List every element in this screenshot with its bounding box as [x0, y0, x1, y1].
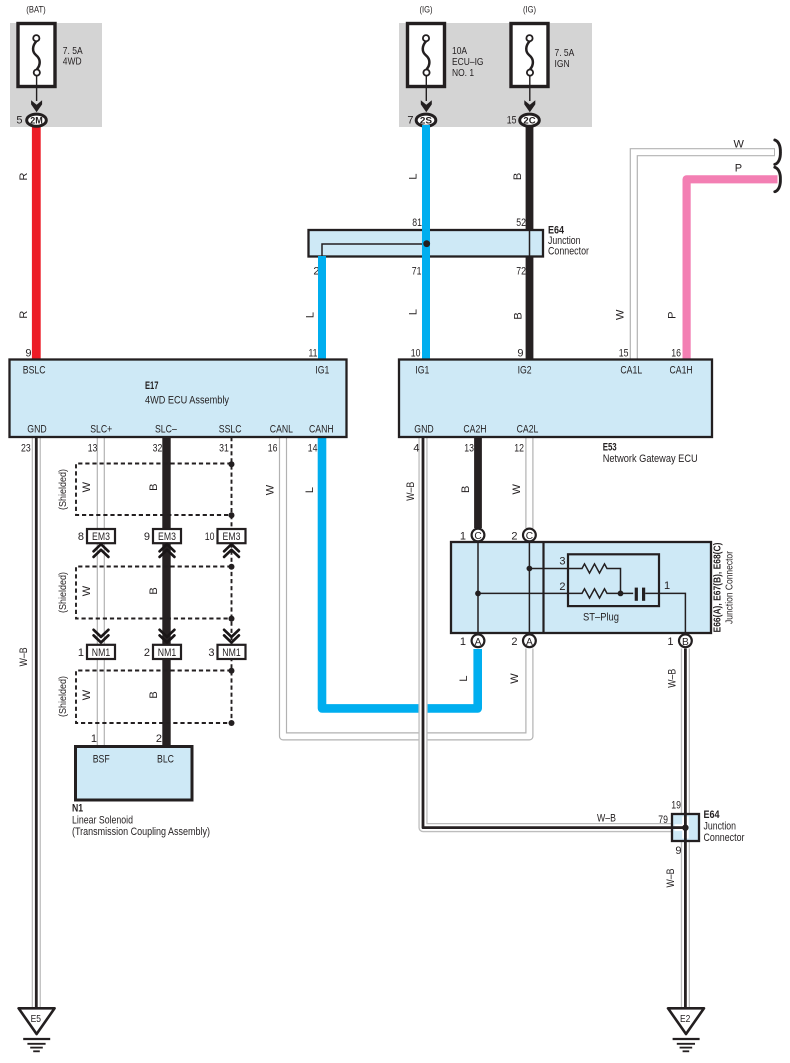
svg-text:W: W	[81, 481, 93, 492]
svg-text:1: 1	[78, 647, 84, 659]
svg-text:(Transmission Coupling Assembl: (Transmission Coupling Assembly)	[72, 826, 210, 838]
svg-text:Connector: Connector	[704, 832, 745, 844]
svg-text:EM3: EM3	[158, 531, 176, 543]
svg-text:E64: E64	[704, 809, 721, 821]
svg-text:3: 3	[208, 647, 214, 659]
svg-text:C: C	[526, 531, 533, 542]
svg-text:13: 13	[88, 443, 98, 455]
svg-text:W: W	[81, 585, 93, 596]
svg-text:CA2L: CA2L	[517, 423, 539, 435]
svg-text:11: 11	[309, 347, 318, 359]
svg-text:71: 71	[412, 266, 422, 278]
svg-text:23: 23	[21, 443, 31, 455]
svg-text:Linear Solenoid: Linear Solenoid	[72, 815, 133, 827]
svg-text:16: 16	[268, 443, 278, 455]
svg-text:Connector: Connector	[548, 245, 589, 257]
svg-text:R: R	[18, 311, 30, 319]
svg-text:2: 2	[511, 636, 517, 648]
svg-text:1: 1	[460, 636, 466, 648]
svg-text:W–B: W–B	[665, 869, 677, 888]
svg-text:31: 31	[219, 443, 229, 455]
svg-text:CA1H: CA1H	[670, 365, 693, 377]
svg-text:B: B	[682, 637, 689, 648]
svg-text:1: 1	[460, 530, 466, 542]
svg-text:E53: E53	[603, 441, 617, 453]
svg-text:W–B: W–B	[18, 647, 30, 666]
svg-text:(Shielded): (Shielded)	[58, 572, 69, 613]
svg-text:W: W	[509, 673, 521, 684]
svg-text:B: B	[148, 587, 160, 594]
svg-text:IG1: IG1	[415, 365, 429, 377]
svg-text:A: A	[475, 637, 482, 648]
svg-text:15: 15	[619, 347, 629, 359]
svg-text:1: 1	[667, 636, 673, 648]
svg-text:IG1: IG1	[315, 365, 329, 377]
svg-text:N1: N1	[72, 803, 83, 815]
svg-text:CA2H: CA2H	[463, 423, 486, 435]
svg-text:W: W	[264, 484, 276, 495]
svg-text:9: 9	[144, 531, 150, 543]
svg-text:2S: 2S	[420, 116, 432, 127]
svg-text:W–B: W–B	[666, 669, 678, 688]
svg-text:32: 32	[153, 443, 163, 455]
svg-text:Junction: Junction	[704, 821, 737, 833]
svg-text:E5: E5	[31, 1014, 42, 1025]
svg-text:(IG): (IG)	[523, 4, 536, 14]
svg-text:7: 7	[407, 115, 413, 127]
svg-text:SLC+: SLC+	[90, 423, 112, 435]
svg-text:9: 9	[25, 347, 31, 359]
svg-text:W–B: W–B	[597, 812, 616, 824]
svg-text:10: 10	[205, 531, 215, 543]
svg-text:B: B	[460, 486, 472, 493]
svg-text:E66(A), E67(B), E68(C): E66(A), E67(B), E68(C)	[713, 543, 724, 633]
svg-text:C: C	[474, 531, 481, 542]
svg-text:B: B	[148, 691, 160, 698]
svg-text:16: 16	[671, 347, 681, 359]
svg-text:12: 12	[514, 443, 524, 455]
svg-text:W: W	[615, 309, 627, 320]
svg-text:R: R	[18, 172, 30, 180]
svg-text:CANH: CANH	[309, 423, 334, 435]
svg-text:W: W	[511, 483, 523, 494]
svg-text:1: 1	[664, 580, 670, 592]
svg-text:3: 3	[559, 556, 565, 568]
svg-text:P: P	[735, 162, 742, 174]
svg-text:A: A	[526, 637, 533, 648]
svg-text:Junction Connector: Junction Connector	[725, 551, 736, 624]
svg-text:B: B	[148, 484, 160, 491]
svg-text:81: 81	[412, 217, 422, 229]
svg-text:L: L	[304, 312, 316, 318]
svg-text:W: W	[81, 689, 93, 700]
svg-text:GND: GND	[27, 423, 46, 435]
svg-text:BSF: BSF	[93, 754, 110, 766]
svg-text:CANL: CANL	[270, 423, 293, 435]
svg-text:(Shielded): (Shielded)	[58, 676, 69, 717]
svg-text:L: L	[408, 309, 420, 315]
svg-text:9: 9	[675, 845, 681, 857]
svg-text:19: 19	[671, 800, 681, 812]
svg-text:4: 4	[413, 443, 419, 455]
svg-text:15: 15	[507, 115, 517, 127]
svg-text:2M: 2M	[30, 116, 43, 127]
svg-text:14: 14	[308, 443, 318, 455]
svg-text:SSLC: SSLC	[219, 423, 242, 435]
svg-text:2: 2	[511, 530, 517, 542]
svg-text:W–B: W–B	[405, 482, 417, 501]
svg-text:9: 9	[517, 347, 523, 359]
svg-text:ST–Plug: ST–Plug	[583, 611, 619, 623]
svg-text:BLC: BLC	[157, 754, 174, 766]
svg-text:GND: GND	[414, 423, 433, 435]
svg-text:EM3: EM3	[92, 531, 110, 543]
svg-text:(IG): (IG)	[419, 4, 432, 14]
svg-text:EM3: EM3	[223, 531, 241, 543]
svg-text:IG2: IG2	[518, 365, 532, 377]
svg-text:2C: 2C	[523, 116, 535, 127]
svg-text:(BAT): (BAT)	[26, 4, 45, 14]
svg-text:10A: 10A	[452, 46, 467, 57]
svg-text:Network Gateway ECU: Network Gateway ECU	[603, 453, 698, 465]
svg-text:13: 13	[464, 443, 474, 455]
svg-text:2: 2	[144, 647, 150, 659]
svg-text:52: 52	[516, 217, 526, 229]
svg-text:BSLC: BSLC	[23, 365, 46, 377]
svg-text:(Shielded): (Shielded)	[58, 469, 69, 510]
svg-text:79: 79	[658, 814, 668, 826]
svg-text:NO. 1: NO. 1	[452, 68, 474, 79]
svg-text:4WD: 4WD	[63, 56, 82, 67]
svg-text:B: B	[512, 312, 524, 319]
svg-text:8: 8	[78, 531, 84, 543]
svg-text:CA1L: CA1L	[620, 365, 642, 377]
svg-text:1: 1	[91, 733, 97, 745]
svg-text:W: W	[734, 138, 745, 150]
svg-text:P: P	[667, 312, 679, 319]
svg-text:E2: E2	[680, 1014, 691, 1025]
svg-text:ECU–IG: ECU–IG	[452, 57, 484, 68]
svg-text:7. 5A: 7. 5A	[555, 48, 575, 59]
svg-text:IGN: IGN	[555, 59, 570, 70]
svg-text:4WD ECU Assembly: 4WD ECU Assembly	[145, 394, 229, 406]
svg-text:SLC–: SLC–	[155, 423, 177, 435]
svg-text:5: 5	[16, 115, 22, 127]
svg-text:72: 72	[516, 266, 526, 278]
svg-text:L: L	[408, 173, 420, 179]
svg-text:NM1: NM1	[92, 647, 110, 659]
svg-text:B: B	[512, 173, 524, 180]
svg-text:2: 2	[559, 581, 565, 593]
svg-text:NM1: NM1	[222, 647, 240, 659]
svg-text:NM1: NM1	[158, 647, 176, 659]
svg-text:E17: E17	[145, 380, 159, 392]
svg-text:10: 10	[411, 347, 421, 359]
svg-text:L: L	[458, 675, 470, 681]
svg-text:2: 2	[156, 733, 162, 745]
svg-text:L: L	[304, 487, 316, 493]
